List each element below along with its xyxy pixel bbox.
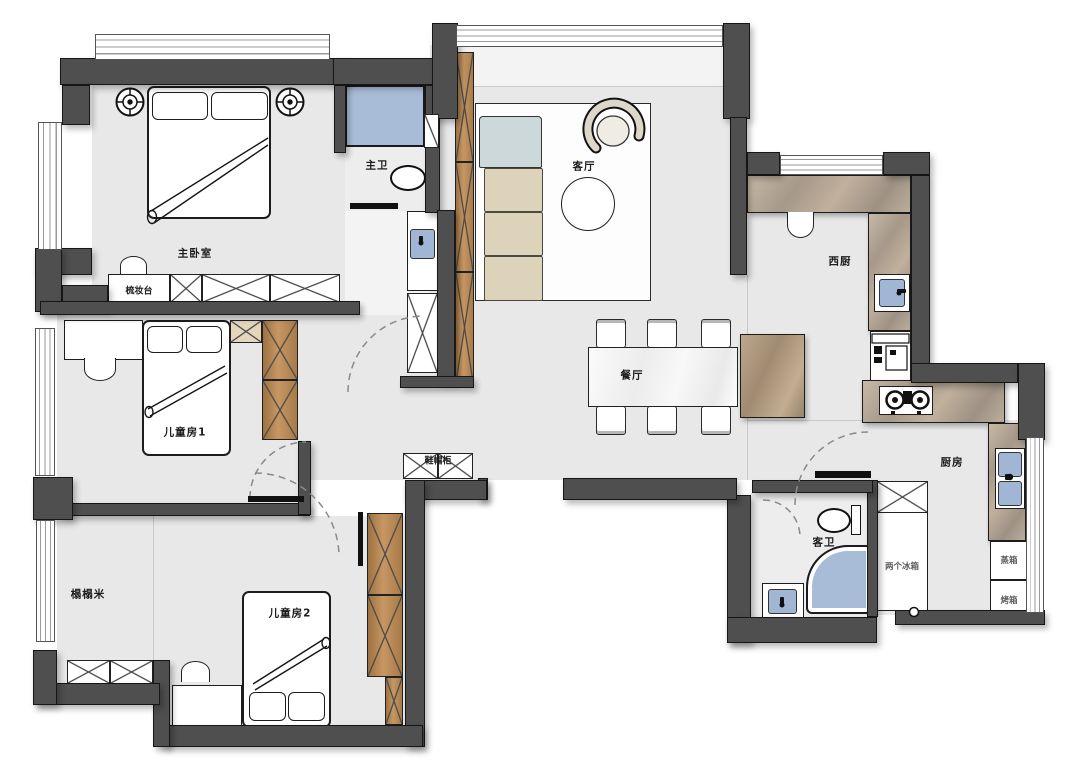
wall — [747, 152, 780, 175]
floor-line — [747, 420, 867, 421]
dining-island — [740, 334, 805, 418]
wardrobe — [270, 274, 340, 303]
pillow — [152, 92, 208, 120]
wall — [400, 376, 474, 388]
wall — [160, 725, 423, 747]
sliding-door-bar — [815, 471, 871, 478]
wall — [60, 58, 347, 85]
window — [95, 34, 330, 60]
kids1-chair — [84, 358, 116, 381]
fridge-cabinet-top — [877, 481, 928, 513]
kids1-cabinet — [230, 320, 262, 343]
dining-table — [588, 347, 738, 407]
coffee-machine-cabinet — [870, 331, 911, 384]
wall-pillar — [432, 23, 458, 119]
wall — [911, 363, 1018, 383]
wall — [334, 85, 346, 153]
floor-line — [153, 516, 154, 660]
wall — [911, 175, 930, 365]
bath-cabinet — [407, 293, 438, 373]
wall — [405, 480, 425, 747]
pillow — [288, 692, 325, 721]
tv-wall-cabinet — [455, 162, 474, 272]
kids2-wardrobe-low — [385, 677, 403, 725]
fixture-label-oven: 烤箱 — [1000, 594, 1017, 606]
sliding-door-bar — [350, 203, 398, 209]
room-label-guest-bath: 客卫 — [813, 535, 836, 550]
kids1-desk — [64, 320, 143, 360]
room-label-tatami: 榻榻米 — [71, 587, 106, 602]
guest-toilet — [817, 508, 851, 533]
pillow — [249, 692, 286, 721]
tv-wall-cabinet — [455, 272, 474, 383]
room-label-kitchen: 厨房 — [941, 455, 964, 470]
west-kitchen-sink — [879, 279, 905, 307]
wall — [62, 85, 90, 125]
wall — [33, 477, 73, 520]
kids1-wardrobe — [262, 380, 298, 440]
dining-chair — [596, 319, 626, 348]
wall — [752, 480, 873, 493]
window — [35, 328, 55, 476]
west-kitchen-counter-right — [868, 213, 911, 331]
pillow — [186, 326, 222, 353]
master-sink — [410, 229, 435, 259]
wall-pillar — [1018, 363, 1045, 440]
room-label-west-kitchen: 西厨 — [829, 254, 852, 269]
floor-living-bay — [456, 45, 723, 87]
room-label-dining-room: 餐厅 — [621, 368, 644, 383]
window — [36, 520, 55, 642]
wall-pillar — [723, 23, 750, 119]
dining-chair — [647, 319, 677, 348]
wall — [883, 152, 930, 175]
wall — [437, 210, 455, 382]
bath-niche — [424, 114, 439, 148]
wall — [298, 441, 311, 515]
wardrobe — [202, 274, 270, 303]
room-label-master-bath: 主卫 — [366, 158, 389, 173]
counter-sink-bump — [787, 212, 814, 238]
window — [1026, 437, 1044, 613]
tatami-cabinet — [67, 660, 110, 684]
sofa-cushion — [484, 212, 543, 256]
wall — [333, 58, 440, 85]
master-toilet — [390, 165, 426, 191]
fixture-label-shoe-cabinet: 鞋帽柜 — [424, 454, 451, 467]
coffee-table — [561, 177, 615, 231]
guest-sink — [768, 589, 797, 614]
wall — [727, 617, 877, 643]
dressing-stool — [120, 256, 147, 275]
guest-toilet-tank — [851, 505, 861, 535]
fixture-label-steam-oven: 蒸箱 — [1000, 554, 1017, 566]
pillow — [147, 326, 183, 353]
master-shower — [345, 85, 425, 147]
kids2-desk — [172, 685, 242, 727]
wall — [895, 610, 1045, 625]
sofa-cushion — [484, 256, 543, 301]
dining-chair — [647, 406, 677, 435]
wall — [60, 503, 310, 516]
kitchen-sink-basin — [998, 481, 1022, 506]
tatami-cabinet — [110, 660, 153, 684]
fixture-label-dressing-table: 梳妆台 — [125, 284, 152, 297]
window — [38, 122, 62, 250]
gas-stove — [879, 386, 933, 415]
room-label-master-bedroom: 主卧室 — [178, 246, 213, 261]
wall — [33, 650, 57, 705]
window — [456, 25, 723, 47]
fixture-label-two-fridges: 两个冰箱 — [885, 560, 919, 572]
room-label-kids-room-1: 儿童房1 — [164, 425, 207, 440]
kids2-chair — [181, 661, 210, 682]
wall — [730, 117, 747, 275]
floorplan: 主卧室 主卫 客厅 西厨 餐厅 儿童房1 儿童房2 榻榻米 客卫 厨房 梳妆台 … — [0, 0, 1080, 771]
door-track — [358, 512, 363, 566]
kitchen-sink-basin — [998, 452, 1022, 477]
pillow — [211, 92, 268, 120]
wall — [563, 478, 737, 500]
kids2-wardrobe — [367, 595, 403, 677]
window — [780, 155, 883, 175]
kids2-wardrobe — [367, 513, 403, 595]
sofa-corner — [479, 116, 542, 168]
wall — [40, 301, 360, 315]
room-label-kids-room-2: 儿童房2 — [269, 606, 312, 621]
wall — [867, 480, 878, 617]
dining-chair — [596, 406, 626, 435]
dining-chair — [701, 406, 731, 435]
kids1-wardrobe — [262, 320, 298, 380]
west-kitchen-counter — [747, 175, 911, 213]
sofa-cushion — [484, 168, 543, 212]
wardrobe — [170, 274, 202, 303]
dining-chair — [701, 319, 731, 348]
sliding-door-bar — [248, 496, 304, 502]
room-label-living-room: 客厅 — [573, 159, 596, 174]
floor-line — [456, 86, 723, 87]
